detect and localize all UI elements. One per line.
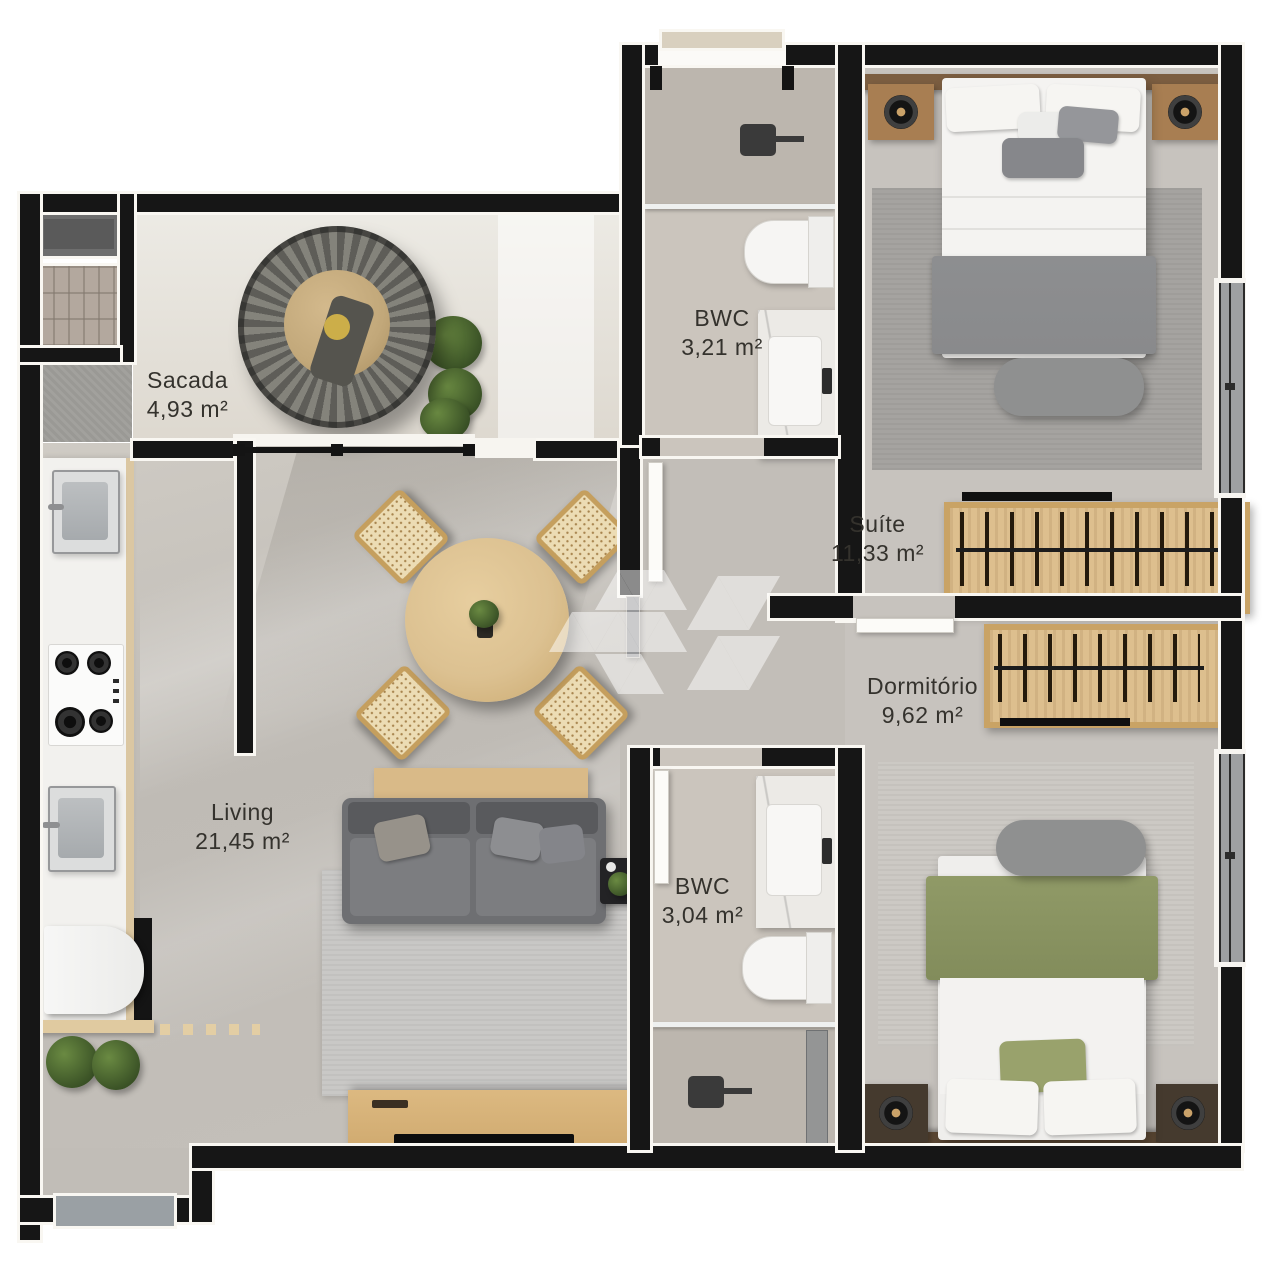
shower-head-icon (740, 124, 776, 156)
room-area: 11,33 m² (785, 539, 970, 568)
sink-basin (62, 482, 108, 540)
nightstand (868, 84, 934, 140)
nightstand-dark (864, 1084, 928, 1142)
room-label-bwc-inferior: BWC 3,04 m² (610, 872, 795, 930)
shower-head-icon (688, 1076, 724, 1108)
table-plant (469, 600, 499, 628)
wardrobe-top-rail (962, 492, 1112, 501)
faucet-icon (822, 368, 832, 394)
cooktop-knobs (113, 679, 119, 709)
utility-wall (120, 194, 134, 362)
nightstand (1152, 84, 1218, 140)
wall (630, 748, 650, 1150)
room-name: BWC (610, 872, 795, 901)
burner-icon (55, 707, 85, 737)
washing-machine (36, 212, 122, 256)
speaker-icon (884, 95, 918, 129)
doormat (56, 1196, 174, 1226)
speaker-icon (879, 1096, 913, 1130)
door-jamb (782, 66, 794, 90)
floor-plant (92, 1040, 140, 1090)
entry-bench-shelf (36, 1020, 154, 1033)
faucet-icon (822, 838, 832, 864)
room-name: BWC (632, 304, 812, 333)
dorm-window (1219, 754, 1245, 962)
faucet-icon (42, 822, 60, 828)
room-area: 3,04 m² (610, 901, 795, 930)
bwc-inferior-door-opening (660, 748, 762, 766)
room-label-living: Living 21,45 m² (150, 798, 335, 856)
dorm-bed (938, 856, 1146, 1140)
sliding-door-threshold (233, 434, 475, 446)
console-decor (372, 1100, 408, 1108)
coat-hook-rail (160, 1024, 260, 1035)
duvet-fold (942, 196, 1146, 198)
partition-wall (237, 441, 253, 753)
window-latch (1225, 852, 1235, 859)
room-name: Dormitório (820, 672, 1025, 701)
window-latch (1225, 383, 1235, 390)
burner-icon (89, 709, 113, 733)
wardrobe-rod (956, 548, 1228, 552)
shower-glass-partition (645, 204, 835, 209)
burner-icon (55, 651, 79, 675)
suite-door-opening (853, 596, 955, 618)
sofa (342, 798, 606, 924)
washer-lid (44, 219, 114, 249)
wall (622, 45, 642, 445)
wall (770, 596, 1241, 618)
wall (536, 441, 622, 458)
toilet (744, 220, 816, 284)
kitchen-sink (52, 470, 120, 554)
balcony-opening (475, 438, 536, 458)
nightstand-dark (1156, 1084, 1220, 1142)
toilet (742, 936, 814, 1000)
throw-pillow (538, 823, 586, 864)
entry-door-sill (662, 32, 782, 48)
toilet-tank (808, 216, 834, 288)
room-area: 3,21 m² (632, 333, 812, 362)
room-label-bwc-superior: BWC 3,21 m² (632, 304, 812, 362)
bwc-superior-door-opening (660, 438, 764, 456)
wall (20, 1198, 58, 1222)
suite-window (1219, 283, 1245, 493)
track-stop (331, 444, 343, 456)
barbecue-grill (38, 266, 124, 346)
entry-nook-floor (40, 1148, 192, 1202)
room-name: Suíte (785, 510, 970, 539)
egg-chair-pillow (324, 314, 350, 340)
shower-glass-partition (652, 1022, 836, 1027)
room-area: 21,45 m² (150, 827, 335, 856)
wall (838, 748, 862, 1150)
watermark-triangle-cube-logo (545, 570, 775, 715)
refrigerator (44, 926, 144, 1014)
foot-bench (994, 358, 1144, 416)
sink-basin (58, 798, 104, 858)
room-name: Sacada (95, 366, 280, 395)
speaker-icon (1171, 1096, 1205, 1130)
suite-door-leaf (856, 618, 954, 633)
wall (20, 194, 622, 212)
shower-arm (774, 136, 804, 142)
wall (133, 441, 233, 458)
faucet-icon (48, 504, 64, 510)
track-stop (233, 444, 245, 456)
duvet-fold (942, 228, 1146, 230)
burner-icon (87, 651, 111, 675)
track-stop (463, 444, 475, 456)
floor-plant (46, 1036, 98, 1088)
room-area: 9,62 m² (820, 701, 1025, 730)
door-jamb (650, 66, 662, 90)
room-label-sacada: Sacada 4,93 m² (95, 366, 280, 424)
wall (192, 1146, 1241, 1168)
bwc-superior-door-leaf (648, 462, 663, 582)
toilet-tank (806, 932, 832, 1004)
foot-bench (996, 820, 1146, 876)
room-label-dormitorio: Dormitório 9,62 m² (820, 672, 1025, 730)
foot-blanket (932, 256, 1156, 354)
shower-glass-door (806, 1030, 828, 1148)
decor-dot (606, 862, 616, 872)
room-name: Living (150, 798, 335, 827)
room-label-suite: Suíte 11,33 m² (785, 510, 970, 568)
speaker-icon (1168, 95, 1202, 129)
sliding-door-track (233, 447, 475, 453)
suite-bed (942, 78, 1146, 358)
room-area: 4,93 m² (95, 395, 280, 424)
entry-opening (658, 45, 786, 65)
lumbar-pillow (1002, 138, 1084, 178)
floor-plan: Sacada 4,93 m² BWC 3,21 m² Suíte 11,33 m… (0, 0, 1280, 1280)
pillow (1043, 1078, 1137, 1135)
shower-arm (722, 1088, 752, 1094)
green-blanket (926, 876, 1158, 980)
bwc-inferior-door-leaf (654, 770, 669, 884)
pillow (945, 1078, 1039, 1135)
utility-wall (20, 348, 120, 362)
wardrobe-rod (994, 666, 1204, 670)
cooktop (48, 644, 124, 746)
service-sink (48, 786, 116, 872)
